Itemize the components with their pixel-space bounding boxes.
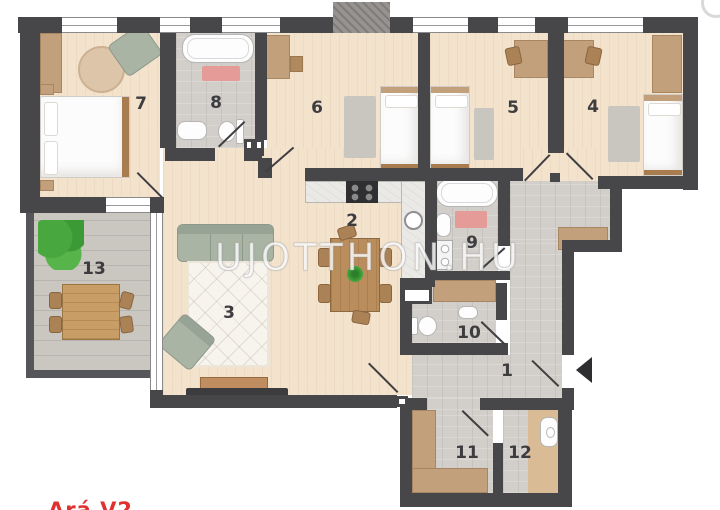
bedroom-lobby-floor — [523, 148, 598, 182]
chair-icon — [49, 316, 62, 333]
rug — [474, 108, 494, 160]
window — [160, 17, 190, 33]
corridor-floor-lower — [412, 355, 510, 398]
room-label-6: 6 — [311, 98, 323, 118]
room-label-1: 1 — [501, 361, 513, 381]
rug — [608, 106, 640, 162]
dresser — [290, 56, 303, 72]
utility-sink-icon — [540, 417, 558, 447]
room-label-13: 13 — [82, 259, 106, 279]
wall-room10-right — [496, 283, 507, 320]
bath-rug — [455, 211, 487, 228]
wall-room10-top — [400, 278, 435, 287]
wall-room8-bottom-stub — [244, 148, 262, 161]
room-label-3: 3 — [223, 303, 235, 323]
bed-icon — [430, 86, 470, 170]
wall-corridor-right — [562, 252, 574, 355]
window — [222, 17, 280, 33]
balcony-sliding-window — [150, 213, 163, 395]
window — [106, 197, 150, 213]
wall-8-6 — [255, 33, 267, 140]
chimney-shaft — [333, 2, 390, 33]
wall-6-5 — [418, 33, 430, 168]
vent-shaft — [396, 396, 408, 407]
double-bed-icon — [40, 96, 130, 178]
toilet-icon — [418, 316, 437, 336]
sink-icon — [177, 121, 207, 140]
wall-corridor-step — [562, 240, 622, 252]
toilet-tank — [411, 317, 418, 335]
wall — [280, 17, 333, 33]
wall-left-outer — [20, 17, 40, 213]
vent-shaft — [402, 287, 432, 304]
wall-11-12 — [493, 443, 503, 495]
wall — [117, 17, 160, 33]
wall-corridor-right-low — [562, 388, 574, 410]
room-label-11: 11 — [455, 443, 479, 463]
room-label-7: 7 — [135, 94, 147, 114]
watermark-text: UJOTTHON.HU — [215, 236, 522, 279]
stove-icon — [346, 181, 378, 203]
wall-bottom — [400, 493, 572, 507]
plant-icon — [38, 220, 84, 270]
wall-room10-bottom — [400, 343, 508, 355]
wall — [190, 17, 222, 33]
balcony-wall-left — [26, 213, 34, 378]
footer-version-text: Ará V2 — [48, 498, 133, 510]
bed-icon — [380, 86, 420, 170]
bathtub-icon — [436, 179, 498, 207]
bath-rug — [202, 66, 240, 81]
room-label-12: 12 — [508, 443, 532, 463]
room-label-5: 5 — [507, 98, 519, 118]
kitchen-sink-icon — [404, 211, 423, 230]
chair-icon — [379, 284, 392, 303]
chair-icon — [318, 284, 331, 303]
rug — [344, 96, 376, 158]
wall — [468, 17, 498, 33]
wall — [20, 197, 106, 213]
hall-cabinet — [433, 280, 496, 302]
wardrobe — [652, 35, 682, 93]
balcony-wall-bottom — [26, 370, 150, 378]
room-label-10: 10 — [457, 323, 481, 343]
entrance-arrow-icon — [576, 357, 592, 383]
nightstand — [40, 180, 54, 191]
wall-living-bottom — [150, 395, 397, 408]
window — [413, 17, 468, 33]
floor-plan: 7 8 6 5 4 2 9 13 3 10 1 11 12 UJOTTHON.H… — [0, 0, 720, 510]
room-label-8: 8 — [210, 93, 222, 113]
wall — [390, 17, 413, 33]
wardrobe — [266, 35, 290, 79]
wall — [535, 17, 568, 33]
wall-bedrooms-bottom — [305, 168, 523, 181]
wall-lobby-stub — [550, 173, 560, 182]
outdoor-table-icon — [62, 284, 120, 340]
bathtub-icon — [182, 34, 254, 63]
wall-7-8 — [160, 33, 176, 148]
wall-right-outer — [683, 17, 698, 190]
window — [498, 17, 535, 33]
room-label-2: 2 — [346, 211, 358, 231]
window — [568, 17, 643, 33]
nightstand — [40, 84, 54, 95]
wall-5-4 — [548, 33, 564, 153]
wall-room11-left — [400, 408, 412, 498]
corridor-door-gap-floor — [427, 398, 480, 410]
sink-icon — [436, 213, 451, 237]
wall — [150, 197, 164, 213]
wardrobe — [412, 468, 488, 493]
bed-icon — [643, 94, 683, 176]
wall-room8-bottom — [165, 148, 215, 161]
watermark-logo-ring — [701, 0, 720, 18]
chair-icon — [49, 292, 62, 309]
sink-icon — [458, 306, 478, 319]
room-label-4: 4 — [587, 97, 599, 117]
chair-icon — [119, 315, 134, 334]
wall-over-12 — [480, 398, 563, 410]
window — [62, 17, 117, 33]
